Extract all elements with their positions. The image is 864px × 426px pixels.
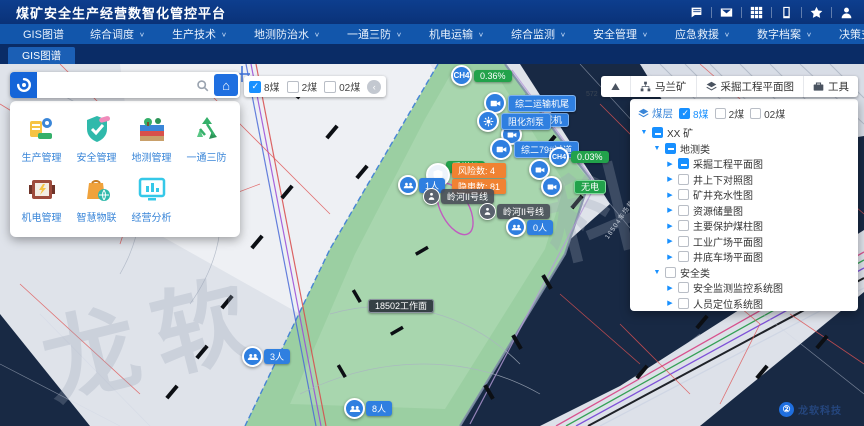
people-count-marker[interactable]: 0人 xyxy=(506,217,553,237)
recycle-icon xyxy=(191,113,223,145)
divider xyxy=(771,7,772,18)
checkbox-unchecked[interactable] xyxy=(678,251,689,262)
map-search-bar: ⌂ xyxy=(10,72,240,98)
mail-icon[interactable] xyxy=(719,5,734,20)
coal-seam-label: 煤层 xyxy=(638,106,673,121)
people-count-badge: 3人 xyxy=(264,349,290,364)
checkbox-unchecked[interactable] xyxy=(678,174,689,185)
layer-tree-panel: 煤层 8煤 2煤 02煤 XX 矿 地测类 采掘工程平面图 井上下对照图 矿井充… xyxy=(630,99,858,311)
tree-node-shaft-bottom[interactable]: 井底车场平面图 xyxy=(638,249,850,265)
caret-right-icon[interactable] xyxy=(666,206,674,214)
drawing-select-button[interactable]: 采掘工程平面图 xyxy=(696,76,804,97)
status-label: 无电 xyxy=(574,180,606,194)
caret-right-icon[interactable] xyxy=(666,284,674,292)
chevron-down-icon: ∨ xyxy=(559,30,567,37)
machine-icon xyxy=(26,173,58,205)
checkbox-unchecked[interactable] xyxy=(287,81,299,93)
workface-marker[interactable]: 18502工作面 xyxy=(368,296,434,314)
caret-down-icon[interactable] xyxy=(653,269,661,276)
checkbox-unchecked[interactable] xyxy=(324,81,336,93)
checkbox-checked[interactable] xyxy=(679,108,690,119)
chevron-down-icon: ∨ xyxy=(138,30,146,37)
app-production[interactable]: 生产管理 xyxy=(14,109,69,167)
people-icon xyxy=(511,222,522,233)
layer-tree: XX 矿 地测类 采掘工程平面图 井上下对照图 矿井充水性图 资源储量图 主要保… xyxy=(638,125,850,311)
nav-item-monitoring[interactable]: 综合监测∨ xyxy=(498,26,580,42)
checkbox-unchecked[interactable] xyxy=(678,282,689,293)
layers-icon xyxy=(706,81,717,92)
app-header: 煤矿安全生产经营数智化管控平台 xyxy=(0,0,864,24)
divider xyxy=(801,7,802,18)
search-input[interactable] xyxy=(37,72,192,98)
tree-node-water-filling[interactable]: 矿井充水性图 xyxy=(638,187,850,203)
device-label: 综二运输机尾 xyxy=(508,95,576,112)
tree-node-safety-monitoring[interactable]: 安全监测监控系统图 xyxy=(638,280,850,296)
chevron-down-icon: ∨ xyxy=(477,30,485,37)
map-toolbar: 马兰矿 采掘工程平面图 工具 xyxy=(601,76,858,97)
nav-item-dispatch[interactable]: 综合调度∨ xyxy=(77,26,159,42)
coal-seam-toolbar: 8煤 2煤 02煤 ‹ xyxy=(244,76,386,97)
user-icon[interactable] xyxy=(839,5,854,20)
pump-marker[interactable]: 阻化剂泵 xyxy=(477,110,551,132)
caret-right-icon[interactable] xyxy=(666,222,674,230)
checkbox-unchecked[interactable] xyxy=(678,298,689,309)
nav-item-production[interactable]: 生产技术∨ xyxy=(159,26,241,42)
workface-label: 18502工作面 xyxy=(368,299,434,313)
seam-8-toggle[interactable]: 8煤 xyxy=(249,79,280,94)
app-safety[interactable]: 安全管理 xyxy=(69,109,124,167)
vendor-logo-text: 龙软科技 xyxy=(798,402,842,417)
seam-2-toggle[interactable]: 2煤 xyxy=(287,79,318,94)
app-ventilation[interactable]: 一通三防 xyxy=(179,109,234,167)
nav-item-emergency[interactable]: 应急救援∨ xyxy=(662,26,744,42)
gas-value-badge: 0.36% xyxy=(474,70,512,82)
gas-value-badge: 0.03% xyxy=(571,151,609,163)
org-tree-icon xyxy=(640,81,651,92)
main-nav: GIS图谱 综合调度∨ 生产技术∨ 地测防治水∨ 一通三防∨ 机电运输∨ 综合监… xyxy=(0,24,864,44)
apps-grid-icon[interactable] xyxy=(749,5,764,20)
chat-icon[interactable] xyxy=(689,5,704,20)
person-icon xyxy=(427,192,436,201)
mine-select-button[interactable] xyxy=(601,76,630,97)
checkbox-indeterminate[interactable] xyxy=(678,158,689,169)
mine-icon xyxy=(610,81,621,92)
caret-right-icon[interactable] xyxy=(666,160,674,168)
app-title: 煤矿安全生产经营数智化管控平台 xyxy=(16,3,226,22)
iot-bag-icon xyxy=(81,173,113,205)
gear-icon xyxy=(483,116,494,127)
nav-item-gis[interactable]: GIS图谱 xyxy=(10,26,77,42)
safety-shield-icon xyxy=(81,113,113,145)
elevation-label: 572 xyxy=(586,91,598,98)
tree-node-surface-contrast[interactable]: 井上下对照图 xyxy=(638,172,850,188)
chevron-down-icon: ∨ xyxy=(313,30,321,37)
chevron-down-icon: ∨ xyxy=(805,30,813,37)
people-icon xyxy=(403,180,414,191)
line-label: 岭河II号线 xyxy=(441,189,494,204)
gis-map[interactable]: 龙软 科技 572 18504车场巷 8煤 2煤 02煤 ‹ ⌂ xyxy=(0,64,864,426)
checkbox-unchecked[interactable] xyxy=(678,236,689,247)
mobile-icon[interactable] xyxy=(779,5,794,20)
checkbox-unchecked[interactable] xyxy=(678,220,689,231)
camera-marker[interactable] xyxy=(541,176,562,197)
apps-menu: 生产管理 安全管理 地测管理 一通三防 机电管理 智慧物联 xyxy=(10,101,240,237)
camera-icon xyxy=(496,144,507,155)
nav-item-geology[interactable]: 地测防治水∨ xyxy=(241,26,334,42)
divider xyxy=(831,7,832,18)
nav-item-safety[interactable]: 安全管理∨ xyxy=(580,26,662,42)
tree-node-resource-reserve[interactable]: 资源储量图 xyxy=(638,203,850,219)
caret-right-icon[interactable] xyxy=(666,175,674,183)
nav-item-decision[interactable]: 决策支持∨ xyxy=(826,26,864,42)
chevron-down-icon: ∨ xyxy=(395,30,403,37)
tree-node-safety-class[interactable]: 安全类 xyxy=(638,265,850,281)
nav-item-archive[interactable]: 数字档案∨ xyxy=(744,26,826,42)
checkbox-unchecked[interactable] xyxy=(678,189,689,200)
checkbox-indeterminate[interactable] xyxy=(652,127,663,138)
mine-name-button[interactable]: 马兰矿 xyxy=(630,76,696,97)
app-iot[interactable]: 智慧物联 xyxy=(69,169,124,227)
camera-icon xyxy=(535,165,545,175)
people-count-marker[interactable]: 8人 xyxy=(344,398,392,419)
no-power-marker[interactable]: 无电 xyxy=(574,177,606,195)
ch4-sensor-marker[interactable]: CH4 0.36% xyxy=(451,65,512,86)
camera-icon xyxy=(490,98,501,109)
seam-filter-row: 煤层 8煤 2煤 02煤 xyxy=(638,106,850,121)
app-electromech[interactable]: 机电管理 xyxy=(14,169,69,227)
production-icon xyxy=(26,113,58,145)
tools-button[interactable]: 工具 xyxy=(803,76,858,97)
tree-node-personnel-location[interactable]: 人员定位系统图 xyxy=(638,296,850,312)
camera-icon xyxy=(547,182,557,192)
tree-node-mining-plan[interactable]: 采掘工程平面图 xyxy=(638,156,850,172)
search-icon[interactable] xyxy=(192,79,212,92)
people-icon xyxy=(349,403,361,415)
checkbox-indeterminate[interactable] xyxy=(665,143,676,154)
chevron-down-icon: ∨ xyxy=(641,30,649,37)
seam-02-toggle[interactable]: 02煤 xyxy=(324,79,360,94)
people-count-badge: 8人 xyxy=(366,401,392,416)
vendor-logo: ② 龙软科技 xyxy=(779,402,842,417)
tree-node-geology-class[interactable]: 地测类 xyxy=(638,141,850,157)
caret-right-icon[interactable] xyxy=(666,253,674,261)
home-button[interactable]: ⌂ xyxy=(214,74,238,96)
checkbox-unchecked[interactable] xyxy=(665,267,676,278)
tree-node-coal-pillar[interactable]: 主要保护煤柱图 xyxy=(638,218,850,234)
layers-icon xyxy=(638,108,649,119)
collapse-icon[interactable]: ‹ xyxy=(367,80,381,94)
vendor-logo-icon: ② xyxy=(779,402,794,417)
ch4-sensor-marker[interactable]: CH4 0.03% xyxy=(549,147,609,167)
caret-right-icon[interactable] xyxy=(666,191,674,199)
header-actions xyxy=(689,5,854,20)
app-geology[interactable]: 地测管理 xyxy=(124,109,179,167)
checkbox-unchecked[interactable] xyxy=(750,108,761,119)
panel-seam-2-toggle[interactable]: 2煤 xyxy=(715,106,745,121)
person-icon xyxy=(483,207,492,216)
panel-seam-8-toggle[interactable]: 8煤 xyxy=(679,106,709,121)
caret-right-icon[interactable] xyxy=(666,299,674,307)
tree-node-industrial-square[interactable]: 工业广场平面图 xyxy=(638,234,850,250)
nav-item-ventilation[interactable]: 一通三防∨ xyxy=(334,26,416,42)
panel-seam-02-toggle[interactable]: 02煤 xyxy=(750,106,785,121)
tree-node-mine[interactable]: XX 矿 xyxy=(638,125,850,141)
people-count-badge: 0人 xyxy=(527,220,553,235)
star-icon[interactable] xyxy=(809,5,824,20)
tab-bar: GIS图谱 xyxy=(0,44,864,64)
checkbox-checked[interactable] xyxy=(249,81,261,93)
people-icon xyxy=(247,351,259,363)
nav-item-electromech[interactable]: 机电运输∨ xyxy=(416,26,498,42)
analysis-monitor-icon xyxy=(136,173,168,205)
checkbox-unchecked[interactable] xyxy=(678,205,689,216)
geology-icon xyxy=(136,113,168,145)
people-count-marker[interactable]: 3人 xyxy=(242,346,290,367)
divider xyxy=(711,7,712,18)
brand-logo-icon[interactable] xyxy=(10,72,37,98)
chevron-down-icon: ∨ xyxy=(220,30,228,37)
application-window: 煤矿安全生产经营数智化管控平台 GIS图谱 综合调度∨ 生产技术∨ 地测防治水∨… xyxy=(0,0,864,426)
caret-down-icon[interactable] xyxy=(653,145,661,152)
caret-down-icon[interactable] xyxy=(640,129,648,136)
app-analysis[interactable]: 经营分析 xyxy=(124,169,179,227)
risk-count-badge: 风险数: 4 xyxy=(452,163,506,178)
device-label: 阻化剂泵 xyxy=(501,113,551,130)
chevron-down-icon: ∨ xyxy=(723,30,731,37)
checkbox-unchecked[interactable] xyxy=(715,108,726,119)
caret-right-icon[interactable] xyxy=(666,237,674,245)
tab-gis[interactable]: GIS图谱 xyxy=(8,47,75,64)
divider xyxy=(741,7,742,18)
toolbox-icon xyxy=(813,81,824,92)
